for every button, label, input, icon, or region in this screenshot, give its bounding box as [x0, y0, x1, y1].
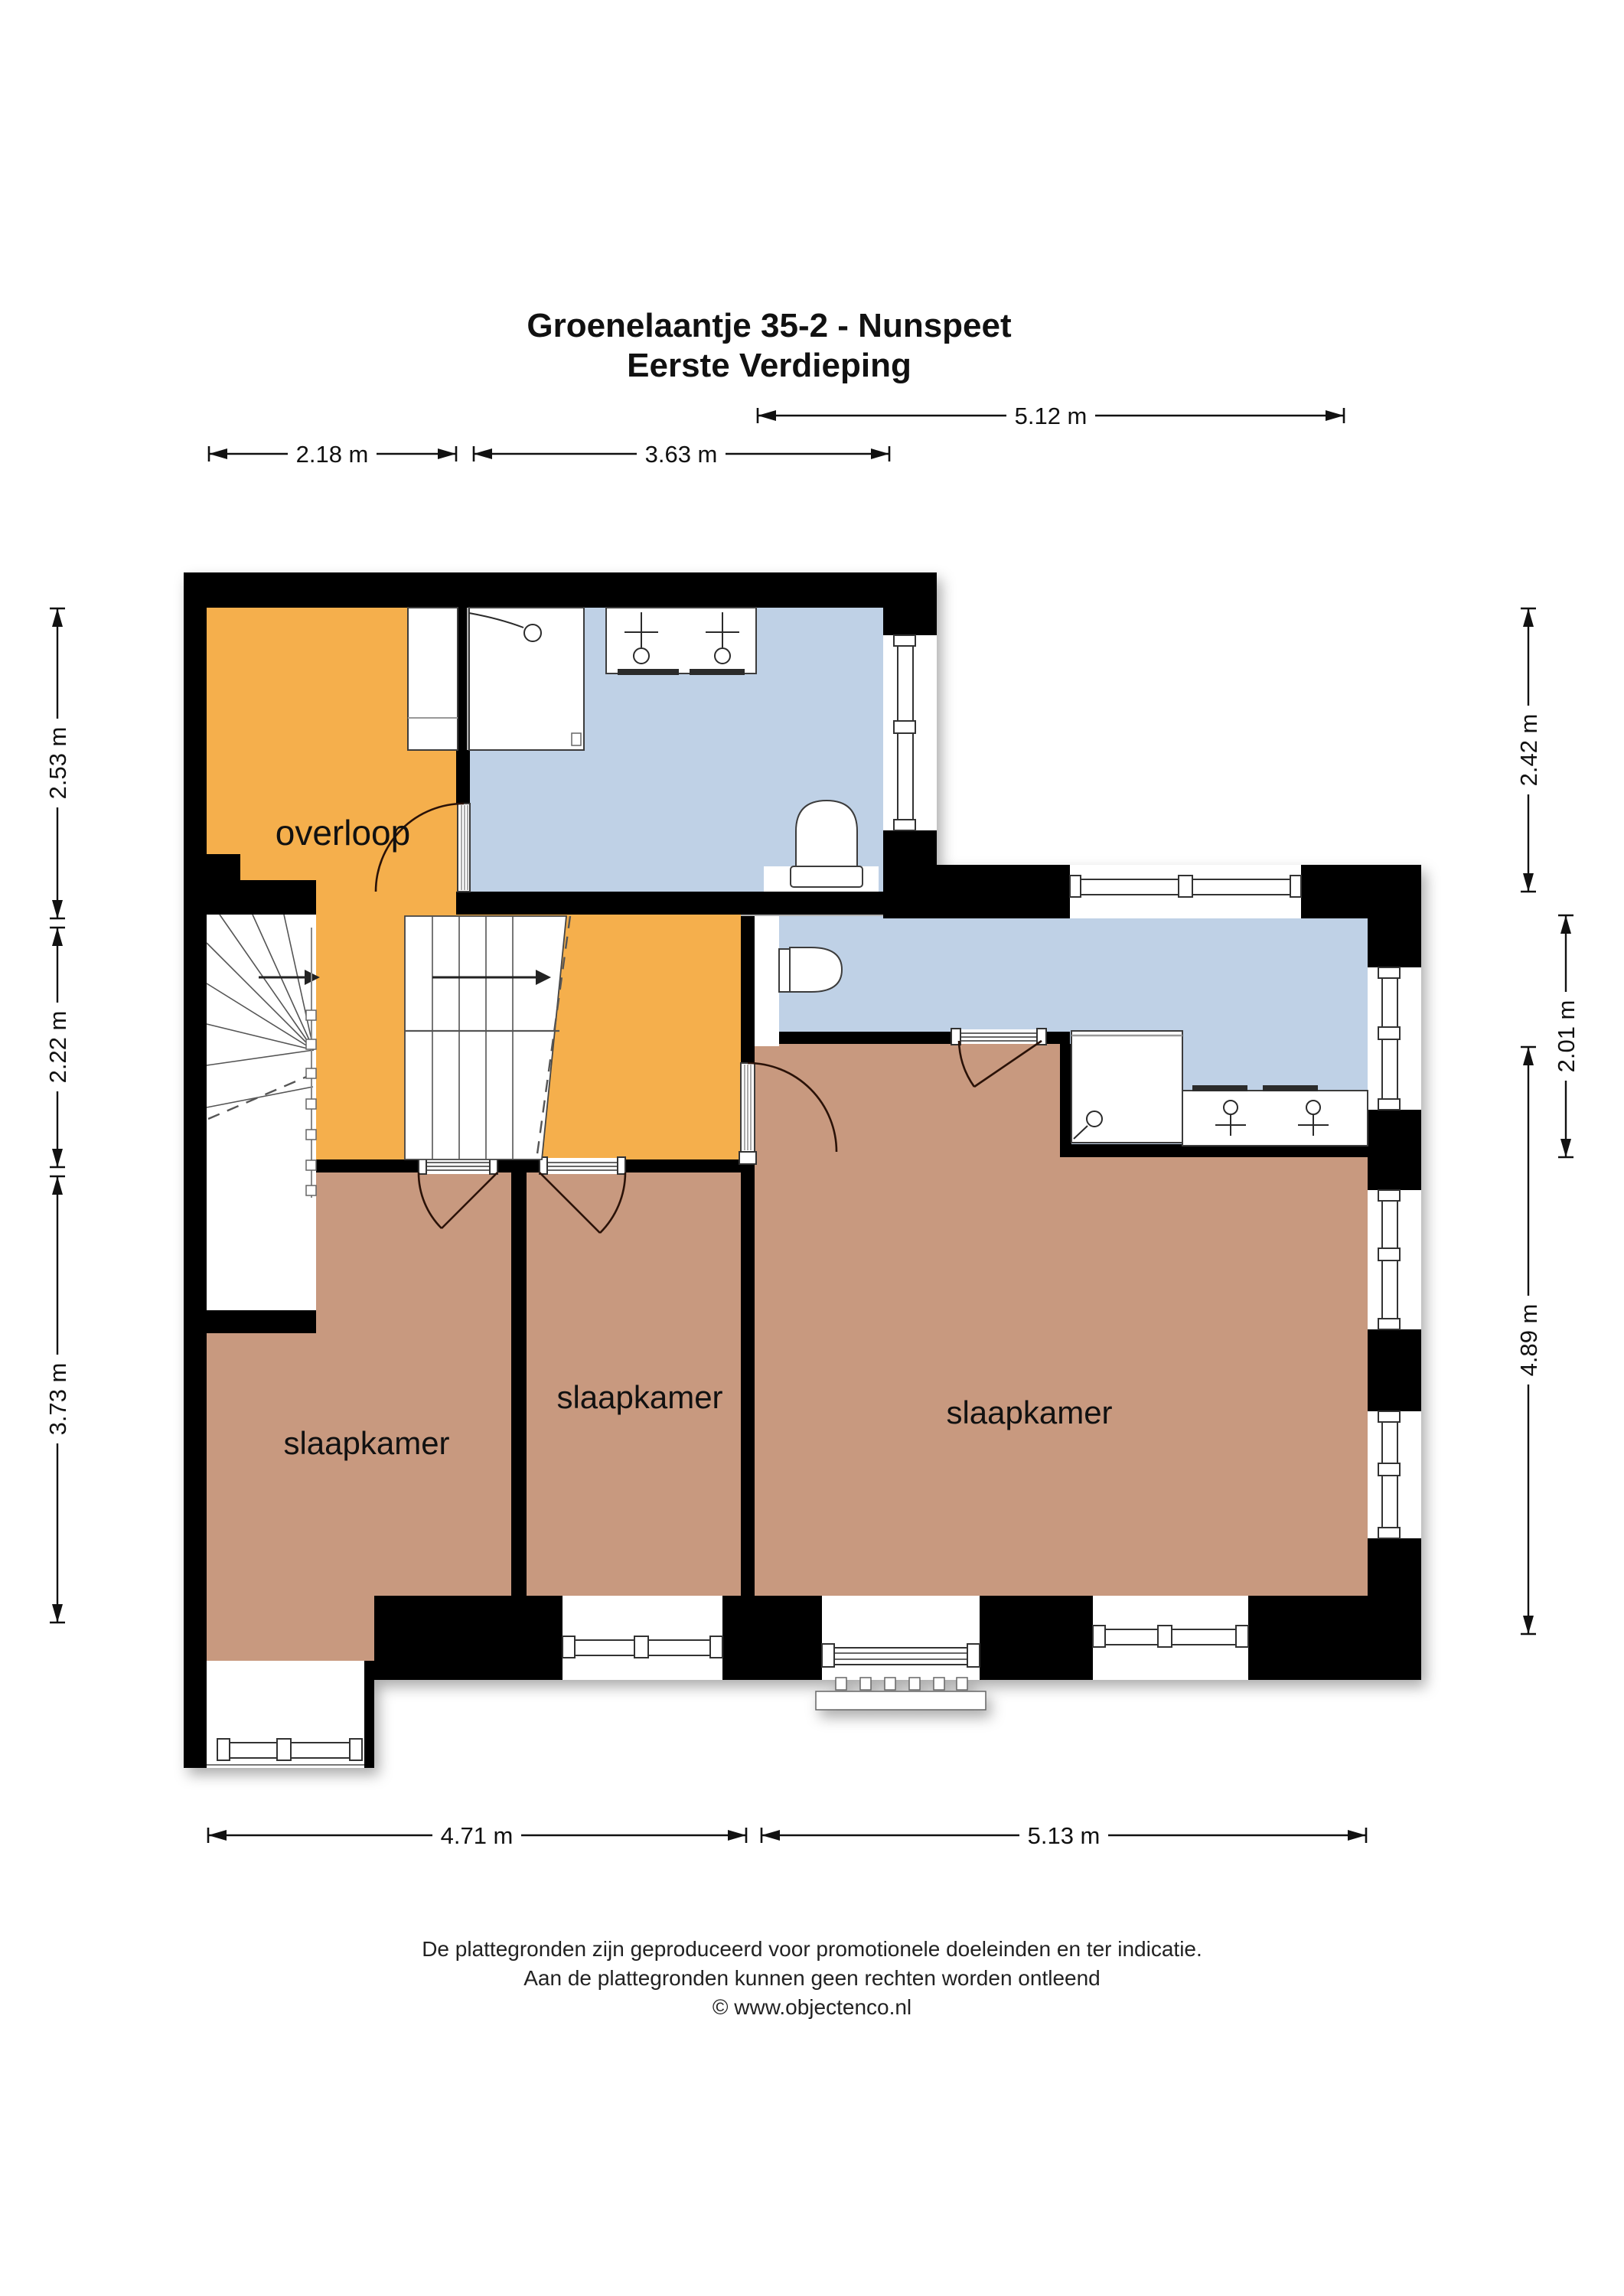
floorplan-page: Groenelaantje 35-2 - Nunspeet Eerste Ver…: [0, 0, 1624, 2296]
svg-text:5.12 m: 5.12 m: [1015, 403, 1088, 429]
svg-text:5.13 m: 5.13 m: [1028, 1822, 1101, 1849]
title-line-1: Groenelaantje 35-2 - Nunspeet: [527, 307, 1012, 344]
title-line-2: Eerste Verdieping: [627, 347, 911, 384]
straight-stairs: [405, 916, 570, 1159]
double-sink-icon: [606, 608, 756, 675]
window-bathroom-east: [883, 635, 937, 830]
dimension-bathroom-width: 3.63 m: [474, 439, 889, 469]
dimension-left-top: 2.53 m: [42, 608, 73, 918]
footer-copyright: © www.objectenco.nl: [713, 1995, 911, 2019]
window-bedroom-middle-south: [563, 1596, 722, 1680]
footer-line-1: De plattegronden zijn geproduceerd voor …: [422, 1937, 1202, 1961]
floor-plan: overloop slaapkamer slaapkamer slaapkame…: [184, 572, 1421, 1768]
svg-text:2.22 m: 2.22 m: [44, 1011, 71, 1084]
dimension-overloop-width: 2.18 m: [209, 439, 456, 469]
svg-text:3.73 m: 3.73 m: [44, 1363, 71, 1436]
svg-text:2.42 m: 2.42 m: [1515, 714, 1542, 787]
dimension-bottom-left: 4.71 m: [208, 1820, 746, 1851]
room-label-bedroom-middle: slaapkamer: [556, 1379, 722, 1415]
dimension-top-width: 5.12 m: [758, 400, 1344, 431]
dimension-left-bottom: 3.73 m: [42, 1176, 73, 1623]
window-east-b: [1368, 1190, 1421, 1329]
closet-cabinet: [408, 608, 458, 750]
room-label-bedroom-left: slaapkamer: [283, 1425, 449, 1461]
svg-text:3.63 m: 3.63 m: [645, 441, 718, 468]
toilet-icon: [791, 801, 863, 887]
double-sink-icon: [1182, 1085, 1368, 1146]
svg-text:2.18 m: 2.18 m: [296, 441, 369, 468]
dimension-right-top: 2.42 m: [1513, 608, 1544, 892]
window-bedroom-right-south: [1093, 1596, 1248, 1680]
footer-line-2: Aan de plattegronden kunnen geen rechten…: [523, 1966, 1100, 1990]
svg-text:2.01 m: 2.01 m: [1553, 1000, 1580, 1073]
floorplan-canvas: Groenelaantje 35-2 - Nunspeet Eerste Ver…: [0, 0, 1624, 2296]
dimension-right-middle: 2.01 m: [1551, 915, 1581, 1157]
footer-disclaimer: De plattegronden zijn geproduceerd voor …: [422, 1937, 1202, 2019]
window-hall-north: [1070, 865, 1301, 918]
shower-icon: [469, 608, 584, 750]
balcony-door-south: [816, 1596, 986, 1710]
dimension-left-middle: 2.22 m: [42, 928, 73, 1167]
page-title: Groenelaantje 35-2 - Nunspeet Eerste Ver…: [527, 307, 1012, 384]
svg-text:4.89 m: 4.89 m: [1515, 1304, 1542, 1377]
toilet-niche: [755, 916, 779, 1046]
room-label-bedroom-right: slaapkamer: [946, 1394, 1112, 1430]
svg-text:4.71 m: 4.71 m: [441, 1822, 514, 1849]
dimension-bottom-right: 5.13 m: [761, 1820, 1366, 1851]
dimension-right-bottom: 4.89 m: [1513, 1047, 1544, 1634]
balcony-railing: [816, 1678, 986, 1710]
window-east-c: [1368, 1411, 1421, 1538]
window-east-a: [1368, 967, 1421, 1110]
shower-icon: [1071, 1031, 1182, 1143]
room-label-overloop: overloop: [276, 813, 410, 853]
toilet-icon: [779, 947, 842, 992]
svg-text:2.53 m: 2.53 m: [44, 727, 71, 800]
